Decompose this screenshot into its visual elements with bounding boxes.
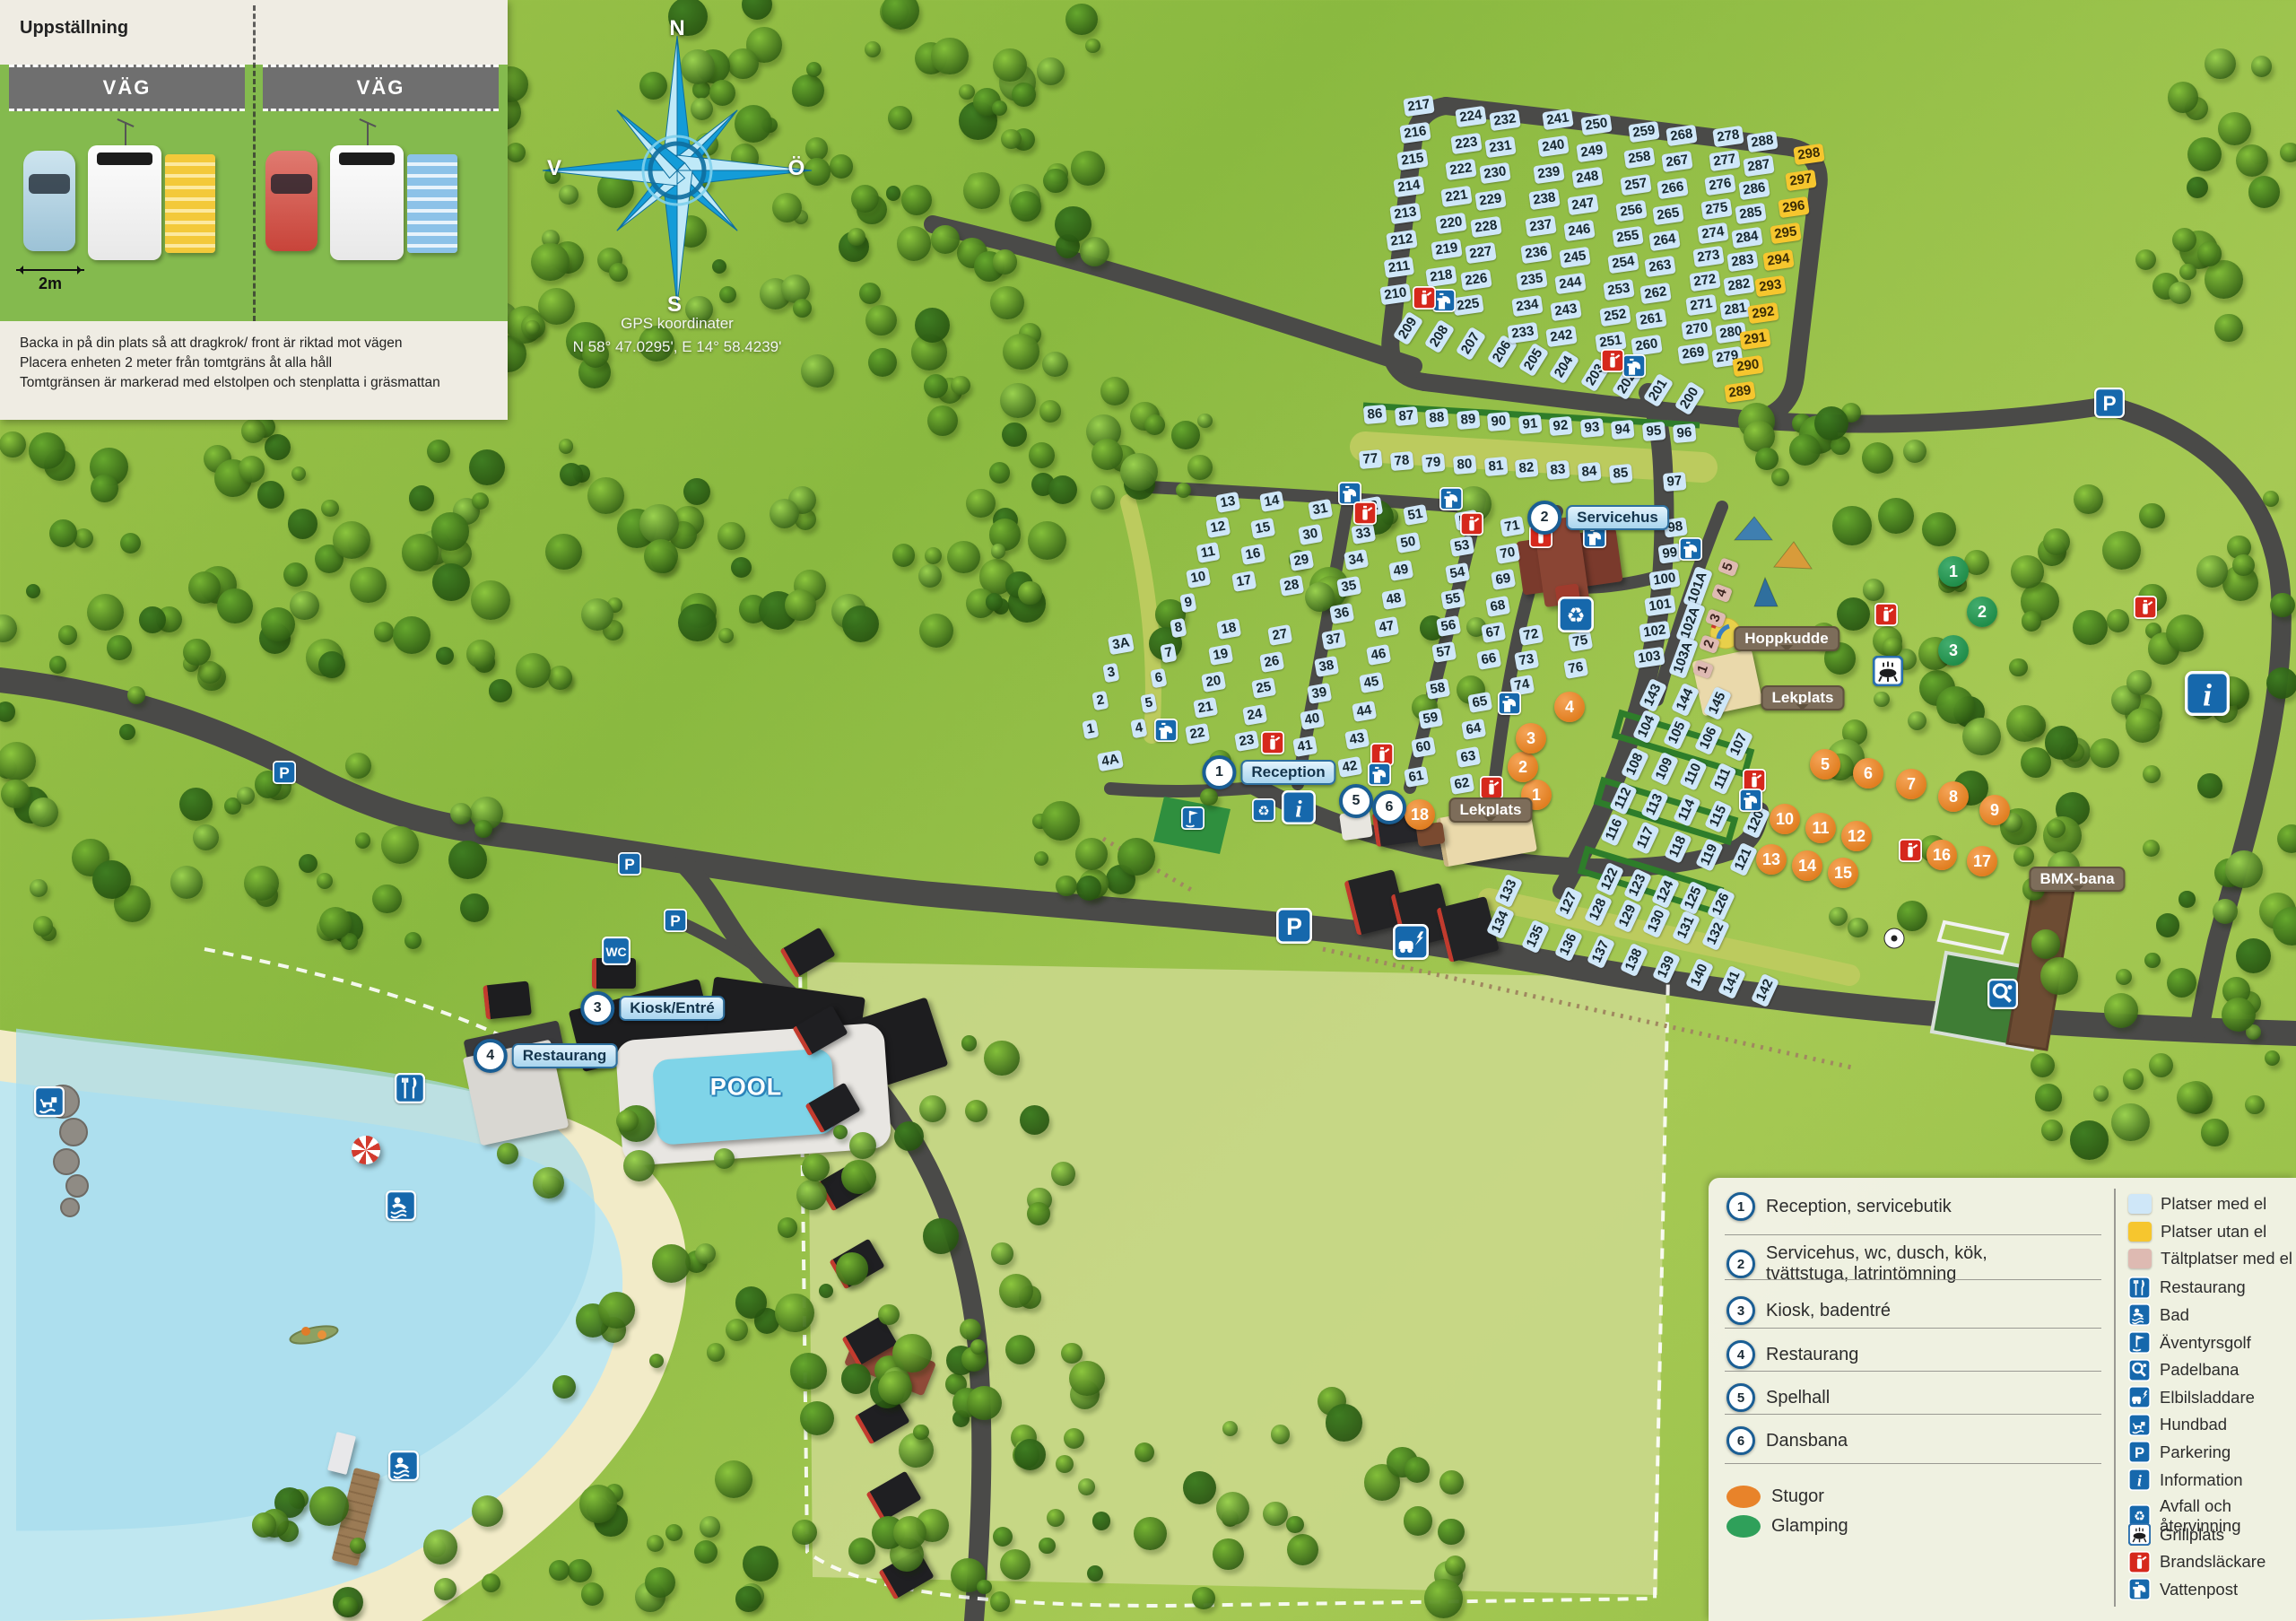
color-swatch [2128, 1222, 2152, 1242]
plot-239: 239 [1534, 161, 1565, 183]
svg-text:i: i [1295, 795, 1302, 822]
plot-246: 246 [1563, 220, 1595, 241]
plot-16: 16 [1240, 544, 1265, 565]
swatch-icon [2128, 1194, 2152, 1214]
legend-symbol-5: Äventyrsgolf [2128, 1331, 2251, 1354]
plot-291: 291 [1739, 328, 1770, 350]
plot-73: 73 [1514, 649, 1539, 671]
legend-number-5: 5 [1726, 1383, 1755, 1412]
svg-text:P: P [1286, 913, 1302, 940]
water-icon [1439, 487, 1463, 510]
plot-255: 255 [1612, 226, 1643, 248]
plot-126: 126 [1707, 887, 1735, 921]
plot-242: 242 [1545, 326, 1577, 347]
plot-297: 297 [1786, 170, 1817, 191]
legend-item-1: 1Reception, servicebutik [1726, 1192, 1952, 1221]
plot-26: 26 [1259, 651, 1284, 673]
legend-item-label: Restaurang [1766, 1345, 1858, 1365]
plot-41: 41 [1292, 736, 1318, 757]
plot-101: 101 [1644, 595, 1675, 616]
stuga-12: 12 [1841, 821, 1872, 851]
restaurang-callout: 4Restaurang [474, 1039, 618, 1073]
legend-symbol-label: Information [2160, 1470, 2243, 1490]
fire-icon [1460, 512, 1483, 536]
plot-230: 230 [1480, 162, 1511, 184]
golf-icon [1181, 806, 1205, 830]
plot-218: 218 [1425, 266, 1457, 287]
plot-75: 75 [1568, 631, 1593, 652]
plot-207: 207 [1456, 327, 1486, 362]
plot-138: 138 [1620, 943, 1648, 977]
svg-text:P: P [2135, 1444, 2144, 1461]
plot-83: 83 [1546, 460, 1570, 480]
legend-symbol-label: Brandsläckare [2160, 1552, 2266, 1572]
parking-icon: P [618, 852, 641, 876]
plot-298: 298 [1793, 144, 1824, 165]
plot-112: 112 [1609, 781, 1638, 815]
plot-62: 62 [1449, 773, 1474, 795]
swatch-icon [2128, 1249, 2152, 1268]
marker-6-callout: 6 [1372, 790, 1406, 824]
plot-100: 100 [1649, 569, 1681, 590]
legend-symbol-2: Tältplatser med el [2128, 1249, 2292, 1268]
plot-214: 214 [1393, 176, 1424, 197]
plot-252: 252 [1599, 305, 1631, 327]
plot-114: 114 [1673, 794, 1701, 828]
plot-265: 265 [1653, 204, 1684, 225]
plot-49: 49 [1388, 560, 1413, 581]
legend-separator [1725, 1328, 2101, 1329]
plot-254: 254 [1607, 252, 1639, 274]
plot-269: 269 [1677, 343, 1709, 364]
plot-77: 77 [1359, 449, 1382, 469]
plot-121: 121 [1729, 842, 1758, 876]
lekplats-callout: Lekplats [1449, 797, 1533, 823]
bmx-bana-callout: BMX-bana [2029, 867, 2125, 892]
plot-262: 262 [1639, 282, 1671, 303]
plot-282: 282 [1723, 275, 1754, 296]
legend-separator [1725, 1414, 2101, 1415]
plot-54: 54 [1445, 562, 1470, 584]
plot-141: 141 [1718, 965, 1746, 999]
car-windshield [271, 174, 312, 194]
plot-113: 113 [1640, 788, 1669, 822]
stuga-11: 11 [1805, 813, 1836, 843]
plot-249: 249 [1576, 140, 1607, 161]
plot-210: 210 [1379, 283, 1411, 305]
plot-4: 4 [1130, 719, 1148, 739]
plot-105: 105 [1663, 715, 1692, 749]
svg-text:i: i [2203, 677, 2212, 713]
restaurant-icon [395, 1073, 425, 1103]
plot-116: 116 [1600, 813, 1629, 847]
glamping-swatch [1726, 1515, 1761, 1538]
legend-symbol-label: Platser utan el [2161, 1222, 2266, 1242]
fire-icon [1353, 501, 1377, 525]
legend-symbol-label: Äventyrsgolf [2160, 1333, 2251, 1353]
plot-136: 136 [1554, 927, 1583, 961]
plot-24: 24 [1242, 704, 1267, 726]
plot-53: 53 [1449, 536, 1474, 557]
instruction-line: Tomtgränsen är markerad med elstolpen oc… [20, 373, 508, 393]
plot-50: 50 [1396, 532, 1421, 553]
plot-274: 274 [1697, 222, 1728, 243]
plot-34: 34 [1344, 549, 1369, 571]
plot-266: 266 [1657, 177, 1689, 198]
grill-icon [2128, 1523, 2151, 1546]
plot-97: 97 [1663, 472, 1686, 492]
plot-240: 240 [1537, 135, 1569, 157]
numbered-marker-4: 4 [474, 1039, 508, 1073]
legend-item-label: Spelhall [1766, 1388, 1830, 1408]
svg-text:WC: WC [605, 945, 626, 959]
plot-86: 86 [1363, 405, 1387, 424]
legend-symbol-label: Hundbad [2160, 1415, 2227, 1434]
plot-12: 12 [1205, 517, 1231, 538]
plot-4: 4 [1711, 582, 1733, 602]
legend-symbol-label: Bad [2160, 1305, 2189, 1325]
plot-142: 142 [1751, 973, 1779, 1007]
stuga-18: 18 [1405, 799, 1435, 830]
plot-72: 72 [1518, 624, 1544, 646]
plot-217: 217 [1403, 95, 1434, 117]
legend-number-4: 4 [1726, 1340, 1755, 1369]
plot-18: 18 [1216, 618, 1241, 640]
plot-213: 213 [1389, 203, 1421, 224]
plot-216: 216 [1400, 122, 1431, 144]
campsite-map-page: { "info_box": { "title": "Uppställning",… [0, 0, 2296, 1621]
plot-60: 60 [1411, 736, 1436, 758]
plot-229: 229 [1474, 189, 1506, 211]
plot-10: 10 [1186, 567, 1211, 588]
plot-23: 23 [1234, 730, 1259, 752]
plot-286: 286 [1739, 179, 1770, 200]
plot-238: 238 [1529, 188, 1561, 210]
svg-text:i: i [2137, 1471, 2142, 1489]
panel-divider [253, 5, 256, 321]
plot-46: 46 [1367, 644, 1392, 666]
legend-number-1: 1 [1726, 1192, 1755, 1221]
plot-260: 260 [1631, 335, 1662, 356]
road-band-left: VÄG [9, 65, 245, 111]
plot-244: 244 [1554, 273, 1586, 294]
legend-item-4: 4Restaurang [1726, 1340, 1858, 1369]
plot-8: 8 [1170, 618, 1187, 639]
plot-29: 29 [1289, 550, 1314, 571]
plot-205: 205 [1518, 342, 1548, 377]
plot-39: 39 [1307, 683, 1332, 704]
gps-coordinates: GPS koordinater N 58° 47.0295', E 14° 58… [573, 312, 782, 359]
stugor-swatch [1726, 1486, 1761, 1508]
plot-250: 250 [1580, 114, 1612, 135]
plot-278: 278 [1712, 126, 1744, 147]
legend-symbol-12: Grillplats [2128, 1523, 2224, 1546]
awning-blue [407, 154, 457, 253]
plot-70: 70 [1495, 543, 1520, 564]
legend-symbol-0: Platser med el [2128, 1194, 2266, 1214]
plot-94: 94 [1611, 420, 1634, 440]
callout-label: Reception [1240, 760, 1335, 785]
callout-label: Lekplats [1761, 685, 1845, 710]
plot-58: 58 [1425, 678, 1450, 700]
plot-19: 19 [1208, 644, 1233, 666]
swim-icon [388, 1451, 419, 1481]
legend-symbol-13: Brandsläckare [2128, 1551, 2266, 1573]
plot-227: 227 [1465, 242, 1497, 264]
plot-223: 223 [1450, 132, 1482, 153]
fire-icon [1261, 731, 1284, 754]
plot-87: 87 [1394, 406, 1417, 426]
distance-label: 2m [39, 275, 62, 292]
plot-1: 1 [1692, 659, 1714, 679]
legend-symbol-label: Grillplats [2160, 1525, 2224, 1545]
dogswim-icon [2128, 1414, 2151, 1436]
plot-71: 71 [1500, 516, 1525, 537]
plot-3: 3 [1705, 608, 1726, 628]
distance-marker: 2m [16, 269, 84, 293]
stuga-17: 17 [1967, 846, 1997, 876]
plot-122: 122 [1596, 862, 1624, 896]
plot-1: 1 [1082, 719, 1100, 740]
plot-275: 275 [1700, 197, 1732, 219]
parking-icon: P [2128, 1441, 2151, 1463]
fire-icon [2128, 1551, 2151, 1573]
plot-276: 276 [1705, 174, 1736, 196]
stuga-3: 3 [1516, 723, 1546, 754]
instruction-line: Backa in på din plats så att dragkrok/ f… [20, 334, 508, 353]
numbered-marker-6: 6 [1372, 790, 1406, 824]
color-swatch [2128, 1194, 2152, 1214]
kiosk-entr--callout: 3Kiosk/Entré [580, 991, 725, 1025]
legend-separator [1725, 1463, 2101, 1464]
plot-234: 234 [1511, 295, 1543, 317]
plot-15: 15 [1250, 518, 1275, 539]
plot-200: 200 [1674, 381, 1705, 416]
road-band-right: VÄG [263, 65, 499, 111]
plot-5: 5 [1140, 693, 1158, 714]
plot-35: 35 [1336, 576, 1361, 597]
plot-145: 145 [1703, 686, 1732, 720]
legend-symbol-3: Restaurang [2128, 1277, 2246, 1299]
plot-5: 5 [1718, 557, 1739, 577]
plot-93: 93 [1579, 418, 1603, 438]
info-icon: i [1282, 790, 1316, 824]
plot-257: 257 [1620, 173, 1651, 195]
plot-47: 47 [1374, 616, 1399, 638]
plot-129: 129 [1613, 898, 1642, 932]
plot-123: 123 [1623, 868, 1652, 902]
plot-36: 36 [1329, 603, 1354, 624]
padel-icon [1987, 979, 2018, 1009]
numbered-marker-1: 1 [1202, 755, 1236, 789]
water-icon [1368, 763, 1391, 786]
plot-28: 28 [1279, 575, 1304, 597]
plot-106: 106 [1694, 721, 1723, 755]
plot-13: 13 [1215, 492, 1240, 513]
plot-64: 64 [1461, 719, 1486, 740]
fire-icon [1899, 839, 1922, 862]
plot-132: 132 [1701, 917, 1730, 951]
plot-119: 119 [1695, 838, 1724, 872]
legend-symbol-label: Platser med el [2161, 1194, 2266, 1214]
fire-icon [1413, 286, 1436, 309]
plot-9: 9 [1179, 593, 1197, 614]
plot-224: 224 [1455, 106, 1486, 127]
caravan-hitch [367, 122, 369, 145]
car-red [265, 151, 317, 251]
caravan-hatch [97, 153, 152, 165]
callout-label: BMX-bana [2029, 867, 2125, 892]
parking-icon: P [664, 909, 687, 932]
plot-115: 115 [1704, 799, 1733, 833]
plot-233: 233 [1507, 322, 1538, 344]
caravan-right [330, 145, 404, 260]
ev-icon [2128, 1386, 2151, 1408]
plot-228: 228 [1470, 215, 1501, 237]
plot-296: 296 [1778, 196, 1809, 218]
glamping-3: 3 [1938, 635, 1969, 666]
plot-25: 25 [1251, 677, 1276, 699]
stuga-2: 2 [1508, 752, 1538, 782]
svg-text:♻: ♻ [2134, 1510, 2145, 1524]
plot-281: 281 [1719, 298, 1751, 319]
plot-76: 76 [1563, 658, 1588, 679]
plot-38: 38 [1314, 656, 1339, 677]
plot-108: 108 [1621, 747, 1649, 781]
compass-north: N [669, 16, 684, 41]
plot-204: 204 [1549, 350, 1579, 385]
plot-3A: 3A [1108, 633, 1135, 655]
distance-arrow [16, 269, 84, 271]
plot-95: 95 [1641, 422, 1665, 441]
wc-icon: WC [602, 937, 631, 965]
plot-88: 88 [1425, 408, 1448, 428]
plot-79: 79 [1422, 453, 1445, 473]
plot-272: 272 [1689, 270, 1720, 292]
fire-icon [1480, 776, 1503, 799]
plot-277: 277 [1709, 150, 1740, 171]
plot-56: 56 [1436, 615, 1461, 637]
plot-131: 131 [1672, 911, 1700, 945]
plot-59: 59 [1418, 708, 1443, 729]
plot-31: 31 [1308, 499, 1333, 520]
plot-80: 80 [1452, 455, 1475, 475]
plot-241: 241 [1542, 109, 1573, 130]
legend-symbol-label: Vattenpost [2160, 1580, 2238, 1599]
plot-43: 43 [1344, 728, 1370, 750]
plot-82: 82 [1515, 458, 1538, 478]
stuga-16: 16 [1926, 840, 1957, 870]
legend-symbol-label: Restaurang [2160, 1277, 2246, 1297]
water-icon [1498, 692, 1521, 715]
plot-125: 125 [1679, 881, 1708, 915]
legend-item-label: Reception, servicebutik [1766, 1197, 1952, 1217]
swatch-icon [2128, 1222, 2152, 1242]
plot-44: 44 [1352, 701, 1377, 722]
plot-37: 37 [1322, 629, 1347, 650]
plot-264: 264 [1648, 230, 1680, 251]
recycle-icon: ♻ [1558, 597, 1594, 632]
marker-5-callout: 5 [1339, 784, 1373, 818]
plot-92: 92 [1549, 416, 1572, 436]
legend-number-6: 6 [1726, 1426, 1755, 1455]
legend-symbol-14: Vattenpost [2128, 1578, 2238, 1600]
hoppkudde-callout: Hoppkudde [1734, 626, 1839, 651]
information-icon: i [2185, 671, 2230, 720]
plot-140: 140 [1685, 958, 1714, 992]
numbered-marker-2: 2 [1527, 501, 1561, 535]
plot-69: 69 [1491, 569, 1516, 590]
stuga-10: 10 [1770, 804, 1800, 834]
plot-118: 118 [1664, 830, 1692, 864]
water-icon [1679, 537, 1702, 561]
svg-text:P: P [279, 764, 290, 782]
legend-symbol-label: Parkering [2160, 1442, 2231, 1462]
info-icon: i [2128, 1468, 2151, 1491]
water-icon [1739, 789, 1762, 812]
plot-78: 78 [1390, 451, 1413, 471]
plot-294: 294 [1762, 249, 1794, 271]
plot-232: 232 [1489, 109, 1520, 131]
legend-area-label: Glamping [1771, 1516, 1848, 1537]
plot-90: 90 [1487, 412, 1510, 431]
plot-3: 3 [1102, 662, 1120, 683]
legend-symbol-8: Hundbad [2128, 1414, 2227, 1436]
plot-4A: 4A [1097, 750, 1124, 771]
legend-symbol-1: Platser utan el [2128, 1222, 2266, 1242]
restaurant-icon [2128, 1277, 2151, 1299]
plot-235: 235 [1516, 268, 1547, 290]
svg-text:P: P [2102, 392, 2116, 415]
dogswim-icon [34, 1086, 65, 1117]
plot-45: 45 [1359, 672, 1384, 693]
panel-instructions: Backa in på din plats så att dragkrok/ f… [0, 321, 508, 420]
awning-yellow [165, 154, 215, 253]
callout-label: Kiosk/Entré [619, 996, 725, 1021]
plot-137: 137 [1587, 935, 1615, 969]
legend-item-6: 6Dansbana [1726, 1426, 1848, 1455]
plot-81: 81 [1483, 457, 1507, 476]
plot-65: 65 [1467, 692, 1492, 713]
plot-212: 212 [1387, 230, 1418, 251]
plot-111: 111 [1709, 763, 1736, 796]
stuga-14: 14 [1792, 850, 1822, 881]
plot-33: 33 [1351, 523, 1376, 545]
plot-68: 68 [1485, 596, 1510, 617]
legend-panel: 1Reception, servicebutik2Servicehus, wc,… [1709, 1178, 2296, 1621]
plot-268: 268 [1665, 125, 1697, 146]
stuga-13: 13 [1756, 844, 1787, 875]
legend-divider [2114, 1189, 2116, 1607]
legend-separator [1725, 1234, 2101, 1235]
legend-symbol-label: Elbilsladdare [2160, 1388, 2255, 1407]
plot-91: 91 [1518, 414, 1541, 433]
plot-139: 139 [1652, 950, 1681, 984]
padel-icon [2128, 1359, 2151, 1381]
numbered-marker-3: 3 [580, 991, 614, 1025]
compass-east: Ö [788, 156, 805, 181]
plot-2: 2 [1699, 633, 1720, 653]
plot-261: 261 [1635, 309, 1666, 330]
swim-icon [2128, 1303, 2151, 1326]
plot-63: 63 [1456, 746, 1481, 768]
swim-icon [386, 1190, 416, 1221]
plot-295: 295 [1770, 222, 1802, 244]
fire-icon [2134, 596, 2157, 619]
plot-237: 237 [1525, 215, 1556, 237]
gps-title: GPS koordinater [573, 312, 782, 336]
plot-225: 225 [1452, 294, 1483, 316]
